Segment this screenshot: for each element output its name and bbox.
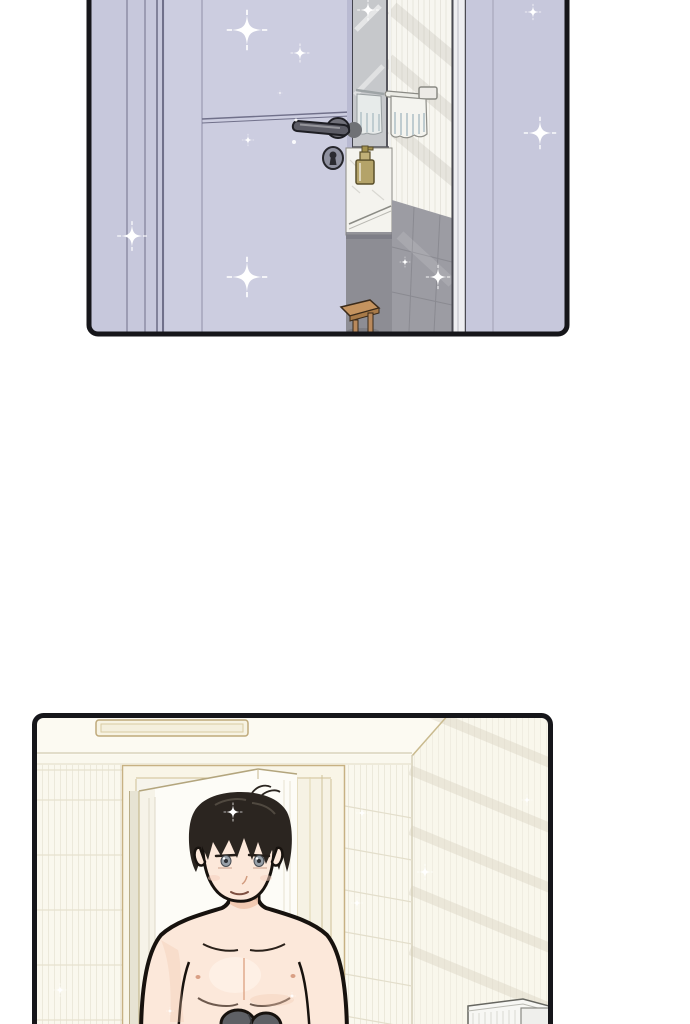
door-jamb [452,0,466,332]
right-wall [466,0,565,332]
middle-tiled-wall [345,764,412,1024]
bathroom-door-panel [89,0,567,334]
comic-artwork [0,0,690,1024]
bathroom-interior [341,0,466,334]
ceiling-vent [96,720,248,736]
keyhole [323,147,343,169]
comic-page [0,0,690,1024]
left-tiled-wall [37,764,122,1024]
doorway-man-panel [35,713,556,1024]
right-tiled-wall [410,713,555,1024]
washbasin [346,146,392,235]
striped-towel [391,96,427,138]
